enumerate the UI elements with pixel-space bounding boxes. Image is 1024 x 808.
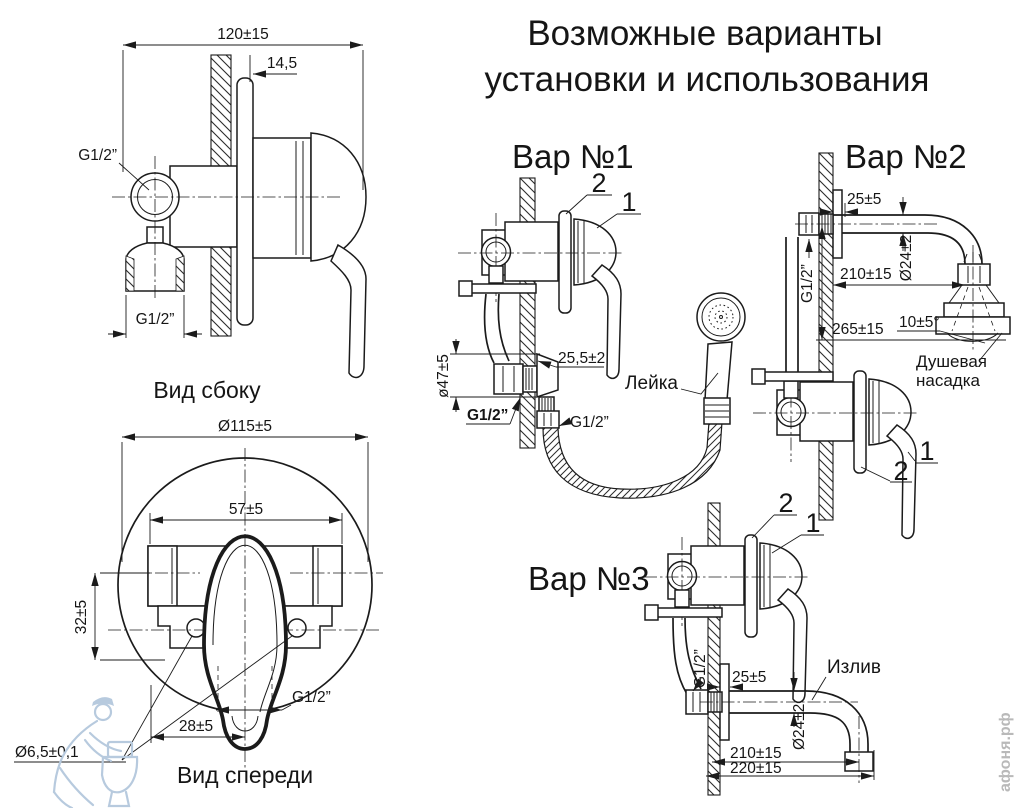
- callout-2-v1-label: 2: [591, 168, 606, 198]
- side-view: 120±15 14,5 G1/2” G1/2” Вид сбоку: [78, 26, 366, 403]
- callout-1-v2-label: 1: [919, 436, 934, 466]
- dim-24-v3-label: Ø24±2: [791, 704, 808, 750]
- dim-28-label: 28±5: [179, 718, 213, 735]
- dim-115-label: Ø115±5: [218, 418, 272, 435]
- dim-47-label: ø47±5: [435, 354, 452, 398]
- variant-2: Вар №2 25±5: [752, 138, 1010, 538]
- thread-bottom-text: G1/2”: [136, 311, 175, 328]
- shower-hose: [543, 422, 722, 498]
- mixer-housing: [253, 138, 311, 258]
- handset-label: Лейка: [625, 373, 678, 394]
- mixer-installation-drawing: Возможные варианты установки и использов…: [0, 0, 1024, 808]
- thread-bottom-dim: G1/2”: [108, 295, 202, 338]
- callout-2-v3-label: 2: [778, 488, 793, 518]
- dim-120-label: 120±15: [217, 26, 269, 43]
- handset-handle: [705, 342, 732, 400]
- front-view-caption: Вид спереди: [177, 762, 313, 788]
- nozzle-label-1: Душевая: [916, 352, 987, 371]
- callout-2-v2: 2: [861, 456, 912, 486]
- technical-drawing-page: Возможные варианты установки и использов…: [0, 0, 1024, 808]
- handset-callout: Лейка: [625, 373, 718, 394]
- thread-front-label: G1/2”: [292, 689, 331, 706]
- thread-v3: G1/2”: [692, 649, 709, 691]
- dim-265-v2-label: 265±15: [832, 321, 884, 338]
- mounting-clamp-v2: [761, 372, 833, 381]
- thread-v2-label: G1/2”: [799, 264, 816, 303]
- mounting-hole-right: [288, 619, 306, 637]
- dim-220-v3-label: 220±15: [730, 760, 782, 777]
- nozzle-nut: [958, 264, 990, 285]
- wall-v1: [520, 178, 535, 448]
- wall-cup-v1: [537, 354, 558, 397]
- variant-3-heading: Вар №3: [528, 560, 650, 597]
- dim-210-v2-label: 210±15: [840, 266, 892, 283]
- nozzle-label-2: насадка: [916, 371, 981, 390]
- dim-25-5-label: 25,5±2: [558, 350, 605, 367]
- mixer-rear-body: [170, 166, 237, 247]
- thread-hose-v1: G1/2”: [559, 414, 609, 431]
- supply-pipe-v1: [485, 294, 509, 363]
- title: Возможные варианты установки и использов…: [485, 14, 930, 99]
- variant-1: Вар №1 2: [435, 138, 745, 498]
- dim-57-label: 57±5: [229, 501, 263, 518]
- dim-32-label: 32±5: [73, 600, 90, 634]
- mounting-clamp-v3: [652, 608, 722, 617]
- dim-25-v2-label: 25±5: [847, 191, 881, 208]
- title-line-2: установки и использования: [485, 60, 930, 99]
- thread-hose-v1-label: G1/2”: [570, 414, 609, 431]
- thread-v2: G1/2”: [799, 239, 816, 303]
- front-view: Ø115±5 57±5 32±5 28±5 G1/2” Ø: [14, 418, 383, 788]
- variant-2-heading: Вар №2: [845, 138, 967, 175]
- variant-1-heading: Вар №1: [512, 138, 634, 175]
- wall-v2: [819, 153, 833, 520]
- overhead-nozzle: [936, 245, 1010, 352]
- nozzle-callout: Душевая насадка: [916, 333, 1002, 390]
- thread-v3-label: G1/2”: [692, 649, 709, 688]
- handset-head: [697, 293, 745, 341]
- callout-2-v2-label: 2: [893, 456, 908, 486]
- spout-label: Излив: [827, 657, 881, 678]
- callout-2-v3: 2: [752, 488, 797, 538]
- dim-24-v2: Ø24±2: [898, 197, 915, 281]
- dim-14-5-label: 14,5: [267, 55, 297, 72]
- thread-wall-v1-label: G1/2”: [467, 407, 508, 424]
- callout-1-v1-label: 1: [621, 187, 636, 217]
- site-watermark: афоня.рф: [997, 712, 1014, 792]
- mounting-clamp-v1: [466, 284, 536, 293]
- side-view-caption: Вид сбоку: [153, 377, 261, 403]
- dim-angle-v2-label: 10±5°: [899, 314, 940, 331]
- spout-callout: Излив: [812, 657, 881, 700]
- thread-top-text: G1/2”: [78, 147, 117, 164]
- escutcheon-plate: [237, 78, 253, 325]
- thread-wall-v1: G1/2”: [466, 398, 520, 424]
- handset: [697, 293, 745, 424]
- callout-1-v3-label: 1: [805, 508, 820, 538]
- variant-3: Вар №3 2 1 G1/2”: [528, 488, 881, 795]
- mixer-handle: [331, 245, 366, 377]
- dim-25-v3-label: 25±5: [732, 669, 766, 686]
- dim-14-5: 14,5: [250, 55, 297, 82]
- union-nut-v1: [494, 364, 523, 394]
- dim-24-v2-label: Ø24±2: [898, 235, 915, 281]
- hose-nut-v1: [537, 411, 559, 428]
- title-line-1: Возможные варианты: [527, 14, 882, 53]
